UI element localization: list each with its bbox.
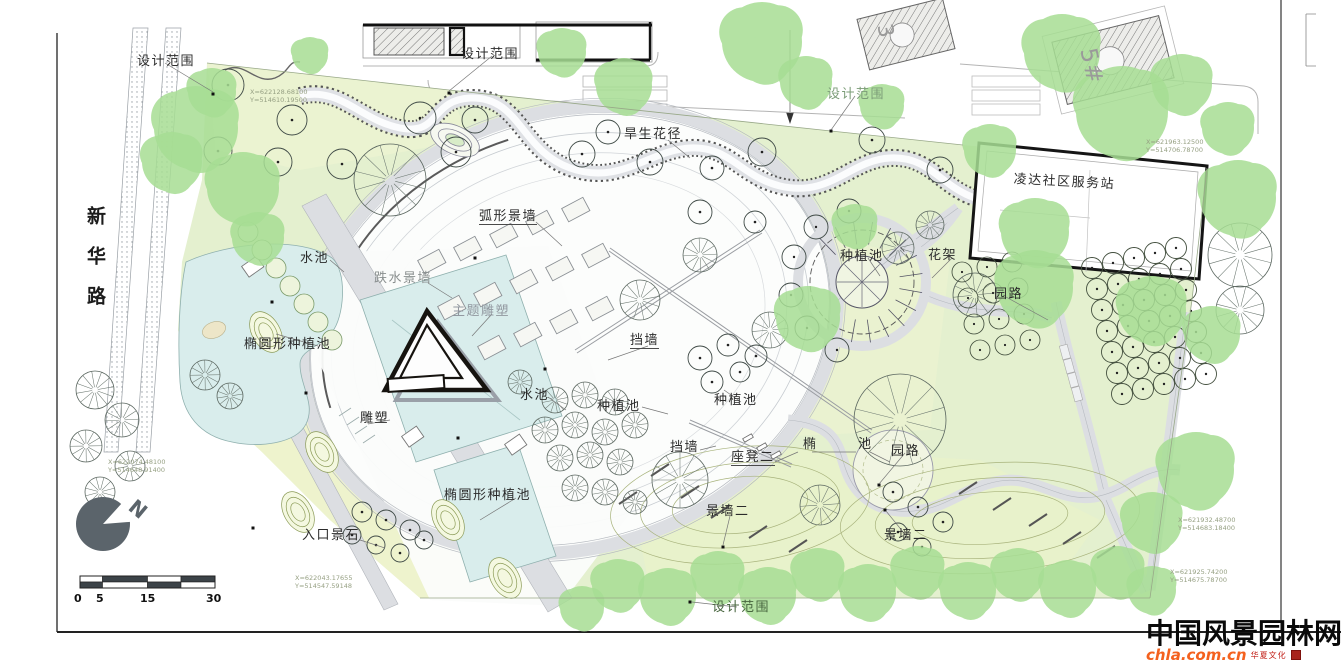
plan-label: 水池 xyxy=(300,252,329,265)
scale-tick-label: 5 xyxy=(96,592,104,605)
coordinate-callout: X=621925.74200Y=514675.78700 xyxy=(1170,568,1227,585)
plan-label: 旱生花径 xyxy=(624,128,682,141)
plan-label: 设计范围 xyxy=(137,55,195,68)
coordinate-x: X=621932.48700 xyxy=(1178,516,1235,524)
plan-label: 设计范围 xyxy=(827,88,885,101)
coordinate-y: Y=514648.91400 xyxy=(108,466,165,474)
coordinate-callout: X=622074.48100Y=514648.91400 xyxy=(108,458,165,475)
coordinate-y: Y=514675.78700 xyxy=(1170,576,1227,584)
coordinate-y: Y=514706.78700 xyxy=(1146,146,1203,154)
plan-label: 设计范围 xyxy=(712,601,770,614)
plan-label: 水池 xyxy=(520,389,549,402)
watermark-logo-icon xyxy=(1291,650,1301,660)
plan-label: 种植池 xyxy=(714,394,758,407)
plan-label: 座凳二 xyxy=(731,451,775,466)
scale-tick-label: 30 xyxy=(206,592,221,605)
plan-label: 景墙二 xyxy=(706,505,750,518)
coordinate-callout: X=621963.12500Y=514706.78700 xyxy=(1146,138,1203,155)
coordinate-x: X=622043.17655 xyxy=(295,574,352,582)
plan-label: 园路 xyxy=(891,445,920,458)
street-name-xinhua-road: 新华路 xyxy=(82,206,109,326)
plan-label: 挡墙 xyxy=(630,334,659,349)
coordinate-x: X=622128.68100 xyxy=(250,88,307,96)
watermark: 中国风景园林网 chla.com.cn 华夏文化 xyxy=(1146,619,1342,664)
plan-label: 椭圆形种植池 xyxy=(244,338,331,351)
site-plan-drawing xyxy=(0,0,1343,665)
scale-tick-label: 0 xyxy=(74,592,82,605)
plan-label: 5# xyxy=(1076,46,1106,87)
plan-label: 种植池 xyxy=(840,250,884,263)
watermark-url: chla.com.cn xyxy=(1146,646,1247,664)
plan-label: 主题雕塑 xyxy=(452,305,510,318)
plan-label: 雕塑 xyxy=(360,412,389,425)
scale-tick-label: 15 xyxy=(140,592,155,605)
plan-label: 种植池 xyxy=(597,400,641,413)
watermark-tagline: 华夏文化 xyxy=(1251,650,1287,661)
plan-label: 景墙二 xyxy=(884,529,928,542)
coordinate-callout: X=622128.68100Y=514610.19500 xyxy=(250,88,307,105)
plan-label: 园路 xyxy=(994,288,1023,301)
coordinate-y: Y=514610.19500 xyxy=(250,96,307,104)
coordinate-x: X=622074.48100 xyxy=(108,458,165,466)
plan-label: 跌水景墙 xyxy=(374,272,432,285)
watermark-site-name: 中国风景园林网 xyxy=(1146,619,1342,648)
coordinate-y: Y=514547.59148 xyxy=(295,582,352,590)
coordinate-callout: X=621932.48700Y=514683.18400 xyxy=(1178,516,1235,533)
coordinate-x: X=621963.12500 xyxy=(1146,138,1203,146)
plan-label: 椭 xyxy=(803,438,818,451)
coordinate-callout: X=622043.17655Y=514547.59148 xyxy=(295,574,352,591)
plan-label: 设计范围 xyxy=(461,48,519,61)
plan-label: 池 xyxy=(858,438,873,451)
plan-label: 入口景石 xyxy=(302,529,360,542)
coordinate-y: Y=514683.18400 xyxy=(1178,524,1235,532)
coordinate-x: X=621925.74200 xyxy=(1170,568,1227,576)
plan-label: 挡墙 xyxy=(670,441,699,454)
plan-label: 花架 xyxy=(928,249,957,262)
landscape-site-plan: 新华路 设计范围设计范围设计范围设计范围旱生花径弧形景墙水池跌水景墙主题雕塑椭圆… xyxy=(0,0,1343,665)
plan-label: 椭圆形种植池 xyxy=(444,489,531,502)
plan-label: 弧形景墙 xyxy=(479,210,537,225)
